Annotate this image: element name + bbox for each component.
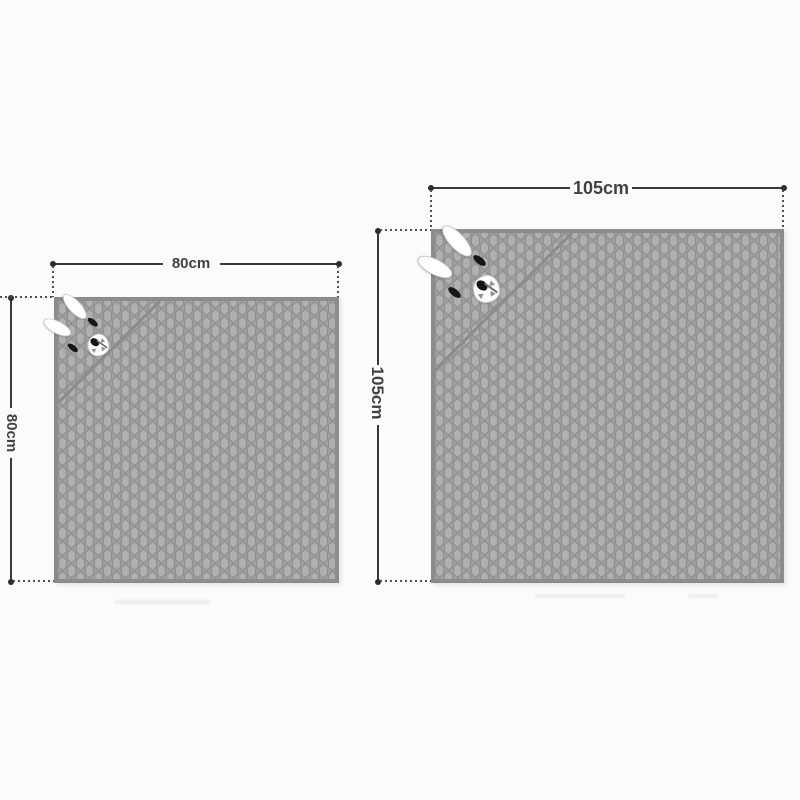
bunny-ear-icon	[438, 221, 477, 261]
stitch-mark-icon	[478, 294, 485, 300]
bunny-ear-icon	[59, 291, 90, 323]
blanket-size-diagram: 80cm 80cm	[0, 0, 800, 800]
dimension-line-segment	[377, 425, 379, 583]
dimension-line-segment	[10, 298, 12, 408]
bunny-eye-icon	[446, 285, 462, 300]
width-dimension-label: 105cm	[567, 177, 635, 199]
extension-guide-line	[380, 580, 431, 582]
bunny-eye-icon	[66, 342, 79, 354]
extension-guide-line	[52, 266, 54, 297]
dimension-line-segment	[377, 231, 379, 365]
bunny-face-icon	[54, 297, 126, 369]
watermark-remnant	[688, 594, 718, 598]
dimension-line-segment	[431, 187, 570, 189]
height-dimension-label: 105cm	[370, 361, 388, 425]
dimension-line-segment	[220, 263, 339, 265]
watermark-remnant	[115, 600, 210, 604]
width-dimension-label: 80cm	[160, 255, 222, 273]
dimension-line-segment	[10, 458, 12, 583]
bunny-eye-icon	[471, 253, 487, 268]
watermark-remnant	[535, 594, 625, 598]
dimension-line-segment	[53, 263, 163, 265]
extension-guide-line	[13, 580, 54, 582]
height-dimension-label: 80cm	[4, 407, 20, 459]
extension-guide-line	[430, 190, 432, 229]
dimension-line-segment	[632, 187, 785, 189]
bunny-ear-icon	[41, 315, 74, 340]
extension-guide-line	[380, 229, 431, 231]
bunny-face-icon	[431, 229, 521, 319]
extension-guide-line	[0, 296, 54, 298]
bunny-eye-icon	[86, 316, 99, 328]
stitch-mark-icon	[91, 349, 96, 354]
extension-guide-line	[337, 266, 339, 297]
bunny-ear-icon	[414, 251, 455, 283]
